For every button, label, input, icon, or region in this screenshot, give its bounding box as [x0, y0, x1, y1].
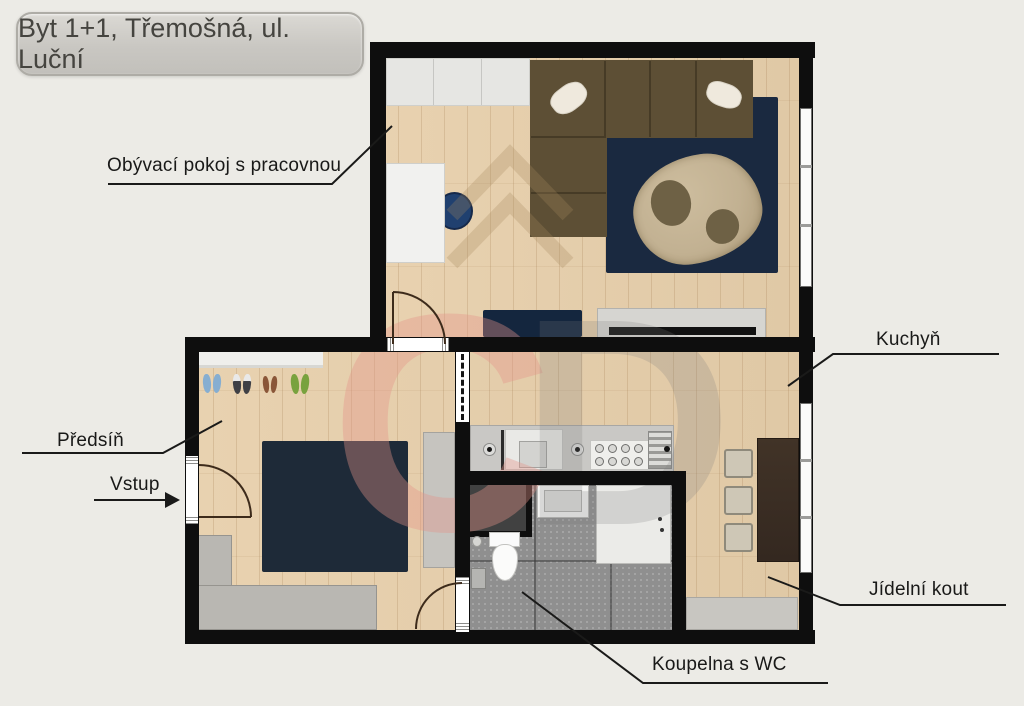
label-hallway: Předsíň — [57, 430, 124, 452]
hallway-rug — [262, 441, 408, 572]
door-jamb — [456, 623, 469, 630]
sofa-seam — [531, 136, 606, 138]
bench — [686, 597, 798, 630]
entrance-arrow-head — [165, 492, 180, 508]
living-room-doorway — [387, 338, 449, 351]
door-jamb — [387, 338, 394, 351]
floor-plan-image: C D — [0, 0, 1024, 706]
faucet-knob-dot — [575, 447, 580, 452]
hallway-wardrobe — [423, 432, 455, 568]
entrance-doorway — [186, 456, 198, 524]
shower-cabin — [596, 485, 671, 564]
label-bathroom: Koupelna s WC — [652, 654, 787, 676]
dining-table — [757, 438, 799, 562]
title-box: Byt 1+1, Třemošná, ul. Luční — [16, 12, 364, 76]
stove-burner — [595, 457, 604, 466]
wall-bathroom-top — [455, 471, 686, 485]
faucet-knob-dot — [664, 446, 670, 452]
stove-burner — [621, 457, 630, 466]
washbasin-bowl — [544, 490, 582, 512]
toilet-brush — [471, 568, 486, 589]
door-jamb — [442, 338, 449, 351]
wardrobe-divider — [433, 59, 434, 105]
dining-chair — [724, 486, 753, 515]
window-mullion — [800, 224, 812, 227]
door-jamb — [186, 516, 198, 524]
wall-top — [370, 42, 815, 58]
cutting-board-stand — [501, 430, 504, 470]
window-living-room — [800, 108, 812, 287]
wall-bathroom-right — [672, 471, 686, 644]
shower-dot — [660, 528, 664, 532]
sofa-seam — [649, 61, 651, 137]
hallway-cabinet — [197, 585, 377, 630]
flush-button — [472, 536, 482, 547]
wall-living-left — [370, 42, 386, 352]
tv — [609, 327, 756, 335]
wall-middle-horizontal — [185, 337, 815, 352]
window-mullion — [800, 459, 812, 462]
sofa-seam — [695, 61, 697, 137]
window-mullion — [800, 165, 812, 168]
window-mullion — [800, 516, 812, 519]
faucet-knob-dot — [487, 447, 492, 452]
sofa-seam — [604, 61, 606, 137]
stove-burner — [634, 444, 643, 453]
label-entrance: Vstup — [110, 474, 160, 496]
stove-burner — [608, 457, 617, 466]
stove-burner — [595, 444, 604, 453]
window-dining — [800, 403, 812, 573]
desk — [386, 163, 445, 263]
door-jamb — [456, 577, 469, 584]
wardrobe-divider — [481, 59, 482, 105]
page-title: Byt 1+1, Třemošná, ul. Luční — [18, 13, 362, 75]
sink — [519, 441, 547, 468]
wardrobe — [386, 58, 530, 106]
label-dining-nook: Jídelní kout — [869, 579, 969, 601]
door-jamb — [186, 456, 198, 464]
kitchen-pointer — [788, 354, 999, 386]
kitchen-passage-dash — [461, 354, 465, 420]
shower-dot — [658, 517, 662, 521]
dining-chair — [724, 449, 753, 478]
sofa-seam — [531, 192, 606, 194]
label-kitchen: Kuchyň — [876, 329, 941, 351]
tv-rug — [483, 310, 582, 337]
stove-burner — [621, 444, 630, 453]
stove-burner — [608, 444, 617, 453]
dining-chair — [724, 523, 753, 552]
label-living-room: Obývací pokoj s pracovnou — [107, 155, 341, 177]
stove-burner — [634, 457, 643, 466]
wall-bottom — [185, 630, 815, 644]
